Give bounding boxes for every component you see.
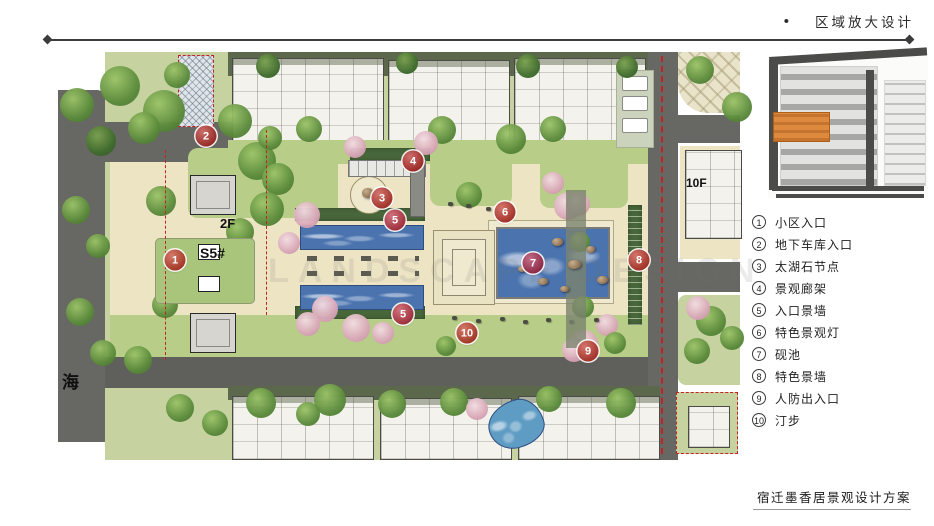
legend-item-2: 2地下车库入口 (752, 237, 853, 251)
legend-number: 8 (752, 369, 766, 383)
tree (296, 312, 320, 336)
tree (536, 386, 562, 412)
water-channel-north (300, 225, 424, 250)
tree (686, 56, 714, 84)
legend-item-10: 10汀步 (752, 413, 853, 427)
tree (372, 322, 394, 344)
legend-label: 小区入口 (775, 214, 827, 231)
legend-item-4: 4景观廊架 (752, 281, 853, 295)
tree (722, 92, 752, 122)
tree (540, 116, 566, 142)
plan-marker-4: 4 (403, 151, 424, 172)
legend-label: 地下车库入口 (775, 236, 853, 253)
tree (396, 52, 418, 74)
legend-number: 10 (752, 413, 766, 427)
legend-number: 7 (752, 347, 766, 361)
tree (378, 390, 406, 418)
legend-label: 人防出入口 (775, 390, 840, 407)
tree (616, 56, 638, 78)
keymap-highlight-region (773, 112, 830, 142)
parked-car-1 (622, 76, 648, 91)
legend-number: 2 (752, 237, 766, 251)
legend-number: 6 (752, 325, 766, 339)
gatehouse-south (190, 313, 236, 353)
tree (684, 338, 710, 364)
legend-label: 入口景墙 (775, 302, 827, 319)
tree (124, 346, 152, 374)
tree (202, 410, 228, 436)
plan-label-10F: 10F (686, 176, 707, 190)
plan-label-海: 海 (62, 368, 79, 393)
tree (440, 388, 468, 416)
tree (166, 394, 194, 422)
gatehouse-north (190, 175, 236, 215)
tree (66, 298, 94, 326)
tree (100, 66, 140, 106)
tree (542, 172, 564, 194)
keymap-road-south-1 (772, 186, 924, 191)
tree (294, 202, 320, 228)
landscape-lamp (466, 204, 471, 208)
tree (246, 388, 276, 418)
tree (60, 88, 94, 122)
tree (86, 126, 116, 156)
legend-number: 1 (752, 215, 766, 229)
landscape-lamp (500, 317, 505, 321)
landscape-lamp (476, 319, 481, 323)
legend-item-7: 7砚池 (752, 347, 853, 361)
tree (720, 326, 744, 350)
tree (296, 402, 320, 426)
legend-label: 景观廊架 (775, 280, 827, 297)
plan-marker-1: 1 (165, 250, 186, 271)
tree (296, 116, 322, 142)
tree (436, 336, 456, 356)
tree (466, 398, 488, 420)
tree (604, 332, 626, 354)
tree (86, 234, 110, 258)
plan-marker-5: 5 (393, 304, 414, 325)
keymap-road-south-2 (776, 194, 924, 198)
legend-number: 5 (752, 303, 766, 317)
legend-number: 9 (752, 391, 766, 405)
landscape-lamp (448, 202, 453, 206)
legend-label: 特色景墙 (775, 368, 827, 385)
legend-item-1: 1小区入口 (752, 215, 853, 229)
plan-marker-5: 5 (385, 210, 406, 231)
plan-marker-3: 3 (372, 188, 393, 209)
building-southeast (688, 406, 730, 448)
landscape-lamp (486, 207, 491, 211)
legend-item-5: 5入口景墙 (752, 303, 853, 317)
plan-marker-6: 6 (495, 202, 516, 223)
legend-item-3: 3太湖石节点 (752, 259, 853, 273)
presentation-slide: • 区域放大设计 (0, 0, 934, 526)
legend-label: 特色景观灯 (775, 324, 840, 341)
landscape-lamp (546, 318, 551, 322)
tree (278, 232, 300, 254)
tree (164, 62, 190, 88)
landscape-lamp (594, 318, 599, 322)
footer-rule (753, 509, 911, 510)
tree (258, 126, 282, 150)
plan-marker-8: 8 (629, 250, 650, 271)
entry-structure-2 (198, 276, 220, 292)
footer-title: 宿迁墨香居景观设计方案 (757, 487, 911, 506)
tree (128, 112, 160, 144)
tree (62, 196, 90, 224)
keymap-east-parcels (884, 80, 926, 186)
legend-label: 太湖石节点 (775, 258, 840, 275)
parked-car-2 (622, 96, 648, 111)
tree (218, 104, 252, 138)
parked-car-3 (622, 118, 648, 133)
plan-marker-2: 2 (196, 126, 217, 147)
landscape-lamp (523, 320, 528, 324)
legend: 1小区入口2地下车库入口3太湖石节点4景观廊架5入口景墙6特色景观灯7砚池8特色… (752, 215, 853, 427)
building-10f (685, 150, 742, 239)
tree (90, 340, 116, 366)
tree (516, 54, 540, 78)
plan-marker-10: 10 (457, 323, 478, 344)
plan-label-S5#: S5# (200, 245, 225, 261)
legend-item-6: 6特色景观灯 (752, 325, 853, 339)
tree (606, 388, 636, 418)
keymap-road-east (866, 70, 874, 188)
plan-marker-7: 7 (523, 253, 544, 274)
road-south (105, 357, 678, 388)
tree (146, 186, 176, 216)
legend-label: 汀步 (775, 412, 801, 429)
legend-label: 砚池 (775, 346, 801, 363)
landscape-lamp (452, 316, 457, 320)
tree (342, 314, 370, 342)
boundary-dashed-entry (266, 130, 267, 315)
plan-marker-9: 9 (578, 341, 599, 362)
legend-item-9: 9人防出入口 (752, 391, 853, 405)
tree (256, 54, 280, 78)
watermark: LANDSCAPE DESIGN (268, 252, 763, 291)
tree (686, 296, 710, 320)
legend-item-8: 8特色景墙 (752, 369, 853, 383)
tree (250, 192, 284, 226)
plan-label-2F: 2F (220, 216, 235, 231)
tree (344, 136, 366, 158)
tree (496, 124, 526, 154)
